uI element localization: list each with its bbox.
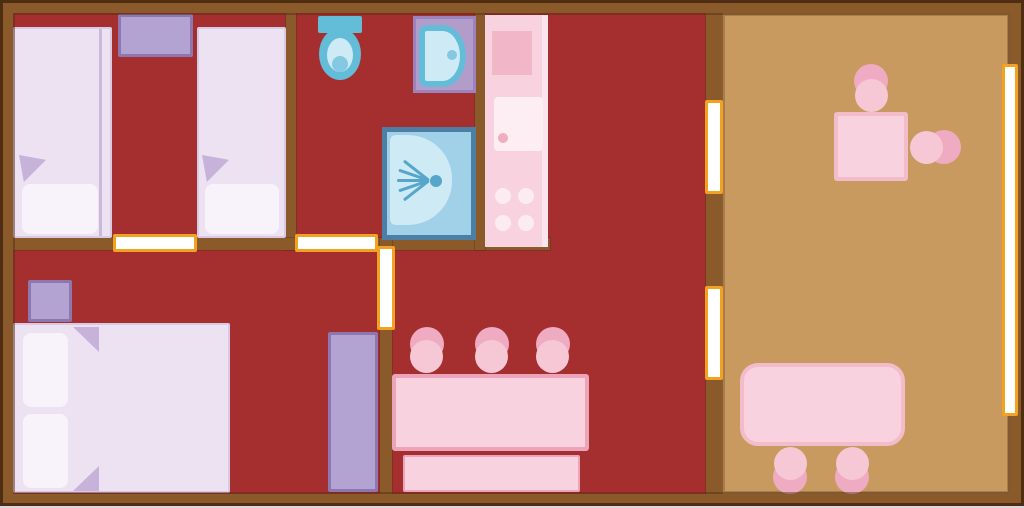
blanket-fold <box>73 466 99 491</box>
bed-pillow <box>23 414 68 488</box>
window-terrace-lower <box>705 286 723 380</box>
washbasin-drain <box>447 50 457 60</box>
dining-chair-seat <box>475 340 508 373</box>
nightstand-twin-bedroom <box>118 14 193 57</box>
floor-plan <box>0 0 1024 508</box>
single-bed-right <box>197 27 286 238</box>
wall-bathroom-kitchen <box>475 13 485 250</box>
stove-burner <box>495 215 511 231</box>
bed-pillow <box>23 333 68 407</box>
wall-living-terrace <box>706 13 722 494</box>
dining-bench <box>403 455 580 492</box>
bed-seam <box>99 29 102 236</box>
bed-pillow <box>22 184 98 234</box>
blanket-fold <box>73 327 99 352</box>
dining-chair-seat <box>410 340 443 373</box>
kitchen-worktop <box>492 31 532 75</box>
terrace-chair-seat <box>855 79 888 112</box>
double-bed <box>13 323 230 493</box>
nightstand-double-bedroom <box>28 280 72 322</box>
terrace-chair-seat <box>836 447 869 480</box>
terrace-square-table <box>834 112 908 181</box>
door-bathroom <box>295 234 378 252</box>
terrace-chair-seat <box>774 447 807 480</box>
shower-head-dot <box>430 175 442 187</box>
single-bed-left <box>13 27 112 238</box>
sink-drain-dot <box>498 133 508 143</box>
stove-burner <box>518 215 534 231</box>
window-terrace-upper <box>705 100 723 194</box>
wall-bedroom-bathroom <box>286 13 296 250</box>
wardrobe <box>328 332 378 492</box>
washbasin <box>419 25 466 87</box>
dining-table <box>392 374 589 451</box>
blanket-fold <box>202 155 229 182</box>
bed-pillow <box>205 184 279 234</box>
terrace-rect-table <box>740 363 905 446</box>
stove-burner <box>518 188 534 204</box>
terrace-chair-seat <box>910 131 943 164</box>
door-living-room <box>377 246 395 330</box>
dining-chair-seat <box>536 340 569 373</box>
toilet-drain <box>332 56 348 72</box>
stove-burner <box>495 188 511 204</box>
blanket-fold <box>19 155 46 182</box>
door-twin-bedroom <box>113 234 197 252</box>
window-terrace-right <box>1002 64 1018 416</box>
